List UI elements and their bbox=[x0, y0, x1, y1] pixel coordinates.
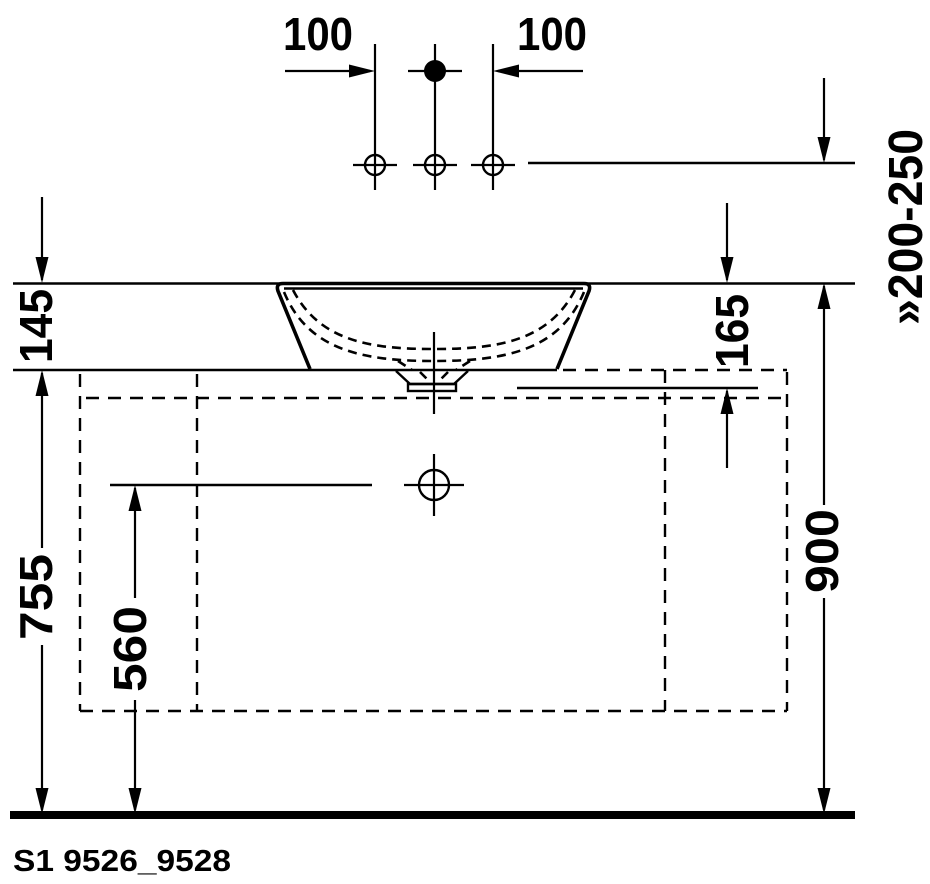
dim-label-100-left: 100 bbox=[283, 8, 353, 60]
cabinet-dashed-outline bbox=[197, 370, 665, 711]
drain-outlet bbox=[396, 371, 468, 516]
arrowhead-down-icon bbox=[129, 788, 142, 814]
product-code-label: S1 9526_9528 bbox=[13, 843, 231, 878]
dim-label-200-250: »200-250 bbox=[880, 129, 930, 325]
vessel-basin bbox=[277, 284, 589, 415]
dimension-145: 145 bbox=[10, 197, 62, 396]
dim-label-755: 755 bbox=[10, 554, 62, 640]
dimension-755: 755 bbox=[10, 373, 62, 814]
console-dashed-outline bbox=[80, 370, 787, 711]
drain-plate bbox=[408, 384, 456, 391]
arrowhead-down-icon bbox=[818, 137, 831, 163]
dimension-560: 560 bbox=[104, 485, 156, 814]
dimension-900: 900 bbox=[796, 283, 848, 814]
installation-diagram: 100 100 145 755 560 165 »200-250 bbox=[0, 0, 930, 884]
dimension-165: 165 bbox=[706, 203, 758, 468]
dim-label-100-right: 100 bbox=[517, 8, 587, 60]
dim-label-145: 145 bbox=[10, 289, 62, 363]
mixer-position-dot bbox=[424, 60, 446, 82]
arrowhead-down-icon bbox=[36, 257, 49, 283]
dim-label-900: 900 bbox=[796, 509, 848, 593]
dimension-tap-height-range: »200-250 bbox=[818, 78, 930, 325]
technical-drawing-page: 100 100 145 755 560 165 »200-250 bbox=[0, 0, 930, 884]
arrowhead-right-icon bbox=[349, 65, 375, 78]
floor-line bbox=[10, 811, 855, 819]
arrowhead-down-icon bbox=[721, 257, 734, 283]
arrowhead-down-icon bbox=[36, 788, 49, 814]
dim-label-165: 165 bbox=[706, 294, 758, 368]
drain-body bbox=[396, 371, 468, 384]
arrowhead-left-icon bbox=[493, 65, 519, 78]
faucet-holes bbox=[353, 44, 515, 190]
dim-label-560: 560 bbox=[104, 606, 156, 692]
arrowhead-down-icon bbox=[818, 788, 831, 814]
